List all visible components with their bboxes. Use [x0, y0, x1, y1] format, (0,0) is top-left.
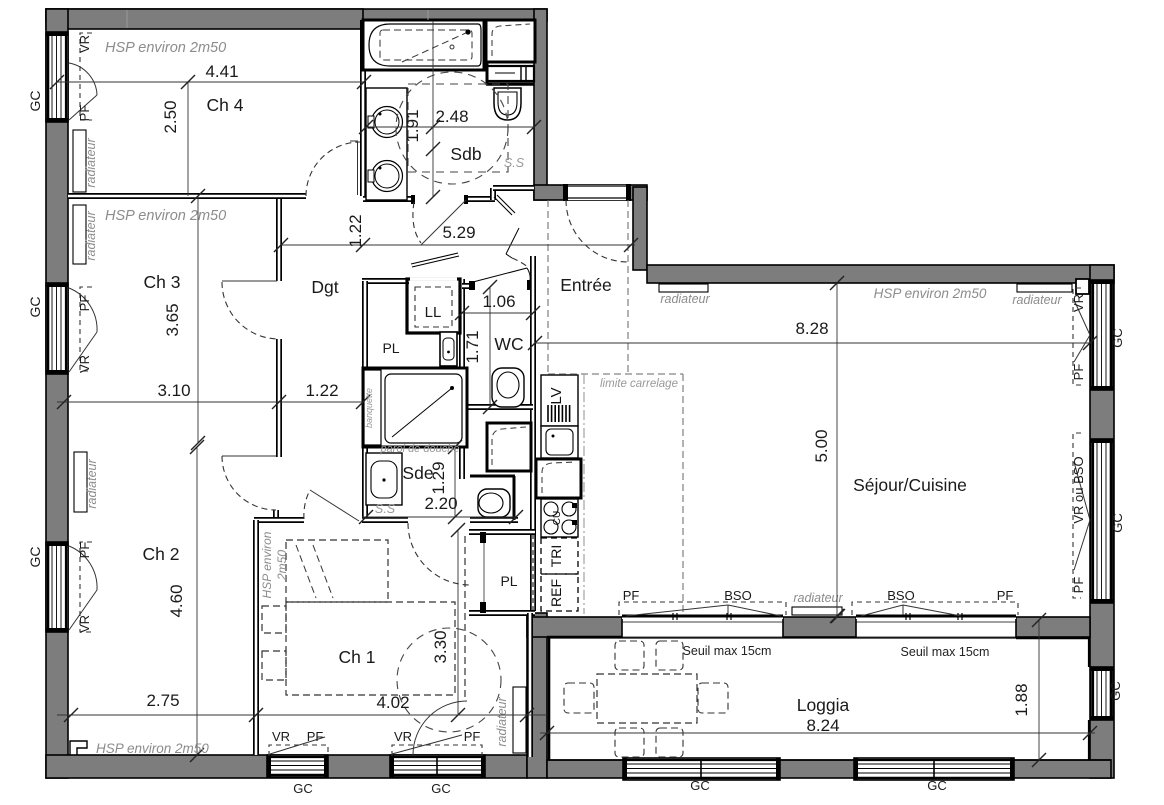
svg-text:BSO: BSO: [887, 588, 914, 603]
svg-text:PL: PL: [382, 340, 399, 356]
svg-text:limite carrelage: limite carrelage: [600, 378, 678, 390]
svg-text:3.10: 3.10: [157, 381, 190, 400]
svg-text:2.20: 2.20: [424, 494, 457, 513]
svg-text:3.30: 3.30: [431, 630, 450, 663]
svg-text:radiateur: radiateur: [84, 210, 98, 260]
svg-text:VR: VR: [1071, 294, 1086, 312]
svg-text:1.91: 1.91: [403, 109, 422, 142]
svg-text:GC: GC: [431, 781, 451, 796]
svg-text:VR ou BSO: VR ou BSO: [1071, 456, 1086, 523]
svg-text:Seuil max 15cm: Seuil max 15cm: [683, 644, 772, 658]
svg-text:LV: LV: [548, 387, 565, 404]
svg-text:1.71: 1.71: [463, 330, 482, 363]
svg-text:Ch 2: Ch 2: [143, 544, 180, 564]
svg-text:radiateur: radiateur: [660, 292, 710, 306]
svg-text:S.S: S.S: [375, 502, 396, 516]
svg-text:PF: PF: [77, 105, 92, 122]
svg-text:1.22: 1.22: [346, 214, 365, 247]
svg-text:REF: REF: [548, 579, 564, 607]
svg-text:BSO: BSO: [724, 588, 751, 603]
svg-text:5.00: 5.00: [812, 429, 831, 462]
svg-text:VR: VR: [272, 729, 290, 744]
svg-text:GC: GC: [1108, 681, 1123, 701]
svg-text:PF: PF: [77, 542, 92, 559]
svg-text:Loggia: Loggia: [797, 695, 850, 715]
svg-text:CU: CU: [552, 511, 563, 525]
svg-text:PL: PL: [500, 573, 517, 589]
svg-text:Sdb: Sdb: [450, 144, 481, 164]
svg-text:1.29: 1.29: [429, 461, 448, 494]
svg-text:1.88: 1.88: [1012, 683, 1031, 716]
svg-text:Dgt: Dgt: [311, 277, 338, 297]
svg-text:8.24: 8.24: [806, 716, 839, 735]
svg-text:Ch 4: Ch 4: [207, 95, 244, 115]
svg-text:2.50: 2.50: [161, 100, 180, 133]
svg-text:2.48: 2.48: [435, 107, 468, 126]
svg-text:2m50: 2m50: [275, 550, 289, 581]
svg-text:radiateur: radiateur: [84, 137, 98, 187]
svg-text:TRI: TRI: [548, 545, 564, 568]
svg-text:PF: PF: [623, 588, 640, 603]
svg-text:Ch 3: Ch 3: [144, 272, 181, 292]
svg-text:GC: GC: [27, 91, 43, 112]
svg-text:1.22: 1.22: [305, 381, 338, 400]
svg-text:Ch 1: Ch 1: [339, 647, 376, 667]
svg-text:GC: GC: [927, 778, 947, 793]
svg-text:LL: LL: [425, 304, 442, 321]
svg-text:VR: VR: [394, 729, 412, 744]
svg-text:HSP environ 2m50: HSP environ 2m50: [874, 286, 987, 301]
svg-text:3.65: 3.65: [163, 303, 182, 336]
svg-text:WC: WC: [494, 334, 523, 354]
svg-text:VR: VR: [77, 35, 92, 53]
svg-text:PF: PF: [77, 295, 92, 312]
svg-text:Séjour/Cuisine: Séjour/Cuisine: [853, 475, 967, 495]
svg-text:1.06: 1.06: [482, 292, 515, 311]
svg-text:S.S: S.S: [504, 156, 525, 170]
svg-text:Entrée: Entrée: [560, 275, 612, 295]
svg-text:VR: VR: [77, 615, 92, 633]
svg-text:2.75: 2.75: [146, 691, 179, 710]
svg-text:GC: GC: [690, 778, 710, 793]
svg-text:paroi de douche: paroi de douche: [380, 443, 460, 455]
svg-text:PF: PF: [464, 729, 481, 744]
svg-text:GC: GC: [293, 781, 313, 796]
svg-text:GC: GC: [27, 547, 43, 568]
svg-text:4.60: 4.60: [167, 584, 186, 617]
svg-text:HSP environ 2m50: HSP environ 2m50: [105, 208, 226, 224]
svg-text:PF: PF: [1071, 577, 1086, 594]
svg-text:GC: GC: [27, 297, 43, 318]
svg-text:VR: VR: [77, 355, 92, 373]
svg-text:PF: PF: [997, 588, 1014, 603]
svg-text:GC: GC: [1110, 513, 1125, 533]
svg-text:4.41: 4.41: [205, 62, 238, 81]
svg-text:Seuil max 15cm: Seuil max 15cm: [901, 645, 990, 659]
svg-text:GC: GC: [1110, 328, 1125, 348]
svg-text:HSP environ: HSP environ: [260, 531, 274, 598]
svg-text:HSP environ 2m50: HSP environ 2m50: [96, 741, 209, 756]
svg-text:PF: PF: [307, 729, 324, 744]
svg-text:5.29: 5.29: [442, 223, 475, 242]
svg-text:radiateur: radiateur: [793, 591, 843, 605]
svg-text:PF: PF: [1071, 364, 1086, 381]
svg-text:radiateur: radiateur: [85, 458, 99, 508]
svg-text:HSP environ 2m50: HSP environ 2m50: [105, 40, 226, 56]
svg-text:radiateur: radiateur: [1012, 293, 1062, 307]
svg-text:4.02: 4.02: [376, 693, 409, 712]
svg-text:radiateur: radiateur: [495, 696, 509, 746]
svg-text:8.28: 8.28: [795, 319, 828, 338]
svg-text:banquette: banquette: [364, 388, 374, 428]
